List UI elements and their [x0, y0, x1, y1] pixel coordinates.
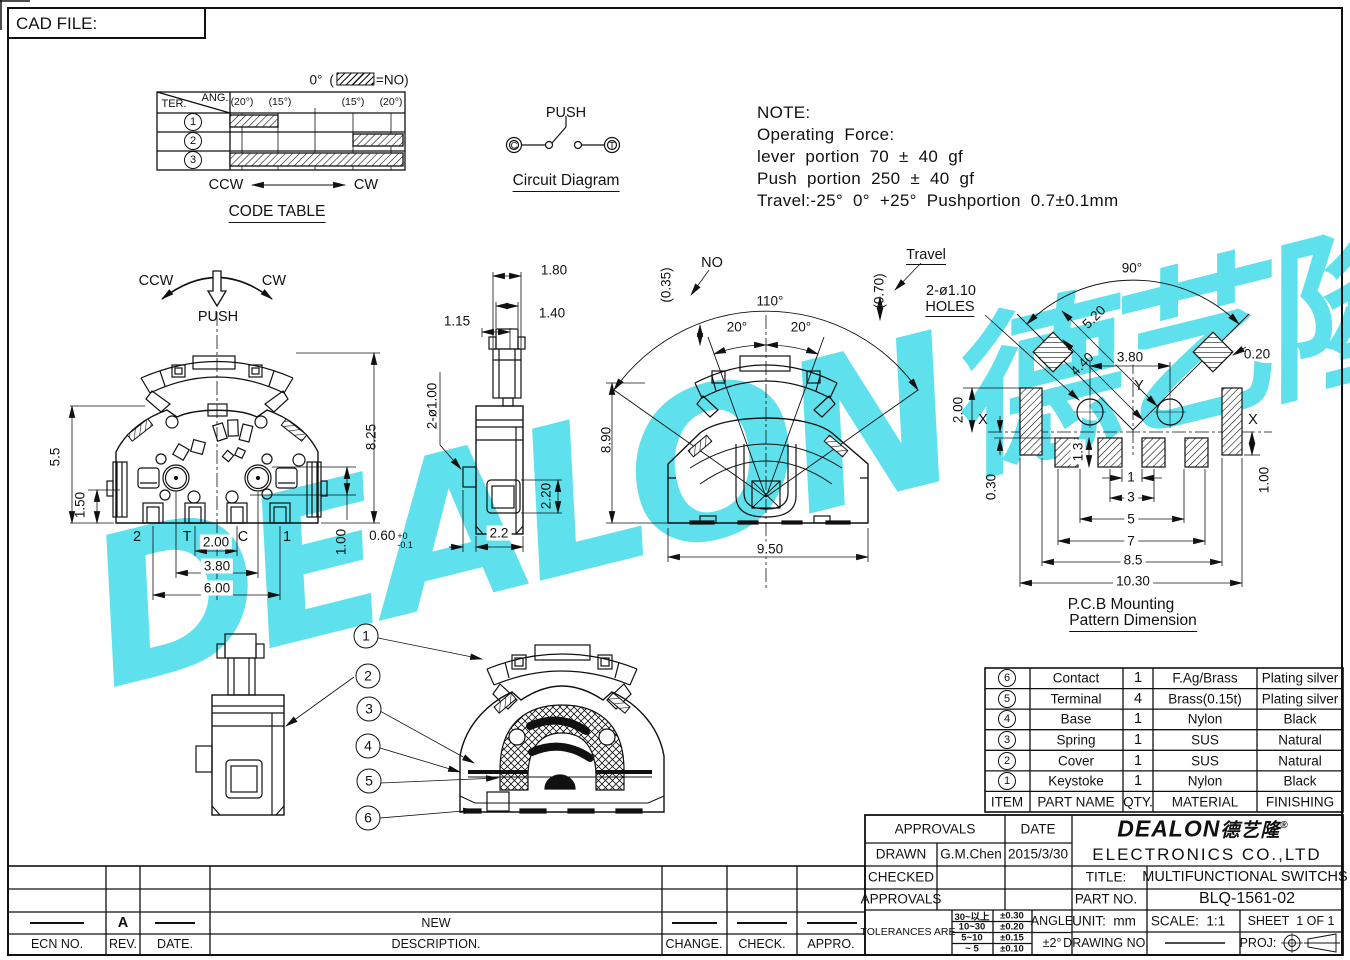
code-ccw-label: CCW	[209, 177, 244, 193]
code-cw-label: CW	[354, 177, 378, 193]
tb-angle-label: ANGLE	[1031, 914, 1073, 928]
tb-title-value: MULTIFUNCTIONAL SWITCHS	[1142, 869, 1347, 885]
tb-partno-label: PART NO.	[1075, 892, 1137, 907]
note-line-3: lever portion 70 ± 40 gf	[757, 147, 963, 167]
tb-unit-cell: UNIT: mm	[1072, 914, 1136, 929]
bom-mat-1: Nylon	[1188, 774, 1223, 789]
code-table-title: CODE TABLE	[229, 203, 326, 223]
tb-checked-label: CHECKED	[868, 870, 934, 885]
callout-2: 2	[356, 664, 381, 689]
dim-pcb-1-3: 1.3	[1071, 440, 1086, 465]
dim-side-2-2: 2.2	[487, 526, 512, 541]
code-zero-label: 0°	[310, 73, 323, 88]
bom-qty-5: 4	[1134, 691, 1142, 707]
bom-fin-2: Natural	[1278, 754, 1322, 769]
tb-tol-val-4: ±0.10	[1000, 944, 1024, 955]
bom-mat-3: SUS	[1191, 733, 1219, 748]
code-table-ter: TER.	[161, 98, 186, 110]
bom-item-4: 4	[998, 710, 1016, 728]
dim-pcb-7: 7	[1124, 534, 1138, 549]
bom-fin-4: Black	[1283, 712, 1316, 727]
tb-angle-value: ±2°	[1043, 936, 1062, 950]
callout-4: 4	[356, 734, 381, 759]
bom-part-6: Contact	[1053, 671, 1100, 686]
callout-5: 5	[357, 769, 382, 794]
dim-front-2-00: 2.00	[200, 535, 232, 550]
tb-date-header: DATE	[1020, 822, 1055, 837]
dim-center-20r: 20°	[791, 320, 811, 335]
code-row-2: 2	[184, 132, 202, 150]
dim-front-5-5: 5.5	[48, 448, 63, 467]
bom-item-3: 3	[998, 731, 1016, 749]
dim-pcb-3-80: 3.80	[1114, 350, 1146, 365]
circuit-caption: Circuit Diagram	[513, 172, 620, 192]
note-line-4: Push portion 250 ± 40 gf	[757, 169, 974, 189]
note-line-5: Travel:-25° 0° +25° Pushportion 0.7±0.1m…	[757, 191, 1118, 211]
bom-header-fin: FINISHING	[1266, 795, 1334, 810]
dim-pcb-2-00: 2.00	[951, 397, 966, 423]
dim-side-1-15: 1.15	[444, 314, 470, 329]
tb-proj-label: PROJ:	[1240, 936, 1277, 950]
bom-mat-5: Brass(0.15t)	[1168, 692, 1242, 707]
dim-side-1-80: 1.80	[541, 263, 567, 278]
bom-header-mat: MATERIAL	[1172, 795, 1239, 810]
center-no-label: NO	[701, 255, 723, 271]
hatch-swatch-icon	[336, 73, 374, 86]
circuit-t-terminal: T	[609, 141, 615, 152]
front-terminal-c: C	[238, 529, 248, 545]
tb-partno-value: BLQ-1561-02	[1199, 890, 1295, 908]
cad-file-label: CAD FILE:	[16, 14, 97, 34]
front-cw-label: CW	[262, 273, 286, 289]
bom-part-5: Terminal	[1050, 692, 1101, 707]
tb-tol-range-4: ~ 5	[965, 944, 978, 955]
tb-drawn-by: G.M.Chen	[940, 847, 1002, 862]
pcb-y-axis: Y	[1134, 378, 1144, 394]
code-col-15r: (15°)	[342, 96, 365, 108]
bom-item-2: 2	[998, 752, 1016, 770]
front-ccw-label: CCW	[139, 273, 174, 289]
dim-center-0-70: (0.70)	[872, 273, 887, 308]
bom-header-qty: QTY.	[1123, 795, 1153, 810]
bom-part-3: Spring	[1056, 733, 1095, 748]
tb-tol-val-3: ±0.15	[1000, 933, 1024, 944]
dim-center-0-35: (0.35)	[659, 267, 674, 302]
bom-fin-3: Natural	[1278, 733, 1322, 748]
tb-tol-val-1: ±0.30	[1000, 911, 1024, 922]
callout-1: 1	[354, 624, 379, 649]
bom-qty-1: 1	[1134, 773, 1142, 789]
bom-fin-6: Plating silver	[1262, 671, 1339, 686]
bom-part-1: Keystoke	[1048, 774, 1104, 789]
front-push-label: PUSH	[198, 309, 238, 325]
bom-fin-5: Plating silver	[1262, 692, 1339, 707]
bom-qty-4: 1	[1134, 711, 1142, 727]
company-logo: DEALON德艺隆®	[1117, 816, 1289, 843]
dim-front-1-00: 1.00	[334, 529, 349, 555]
tb-drawingno-label: DRAWING NO.	[1063, 936, 1149, 950]
tb-tol-range-3: 5~10	[961, 933, 982, 944]
bom-header-item: ITEM	[991, 795, 1023, 810]
circuit-push-label: PUSH	[546, 105, 586, 121]
dim-pcb-1: 1	[1124, 470, 1138, 485]
bom-mat-2: SUS	[1191, 754, 1219, 769]
dim-center-110: 110°	[757, 294, 784, 309]
bom-mat-6: F.Ag/Brass	[1172, 671, 1237, 686]
dim-side-2-20: 2.20	[539, 483, 554, 509]
dim-front-3-80: 3.80	[201, 559, 233, 574]
dim-pcb-0-30: 0.30	[984, 474, 999, 500]
watermark-text: DEALON德艺隆®	[64, 161, 1350, 735]
rev-letter-a: A	[118, 915, 128, 931]
tb-drawn-label: DRAWN	[876, 847, 927, 862]
callout-3: 3	[357, 697, 382, 722]
dim-side-0-60: 0.60+0-0.1	[369, 528, 413, 550]
pcb-holes-line1: 2-ø1.10	[926, 283, 976, 299]
front-terminal-t: T	[183, 529, 192, 545]
dim-pcb-0-20: 0.20	[1244, 347, 1270, 362]
dim-pcb-90: 90°	[1122, 261, 1142, 276]
dim-side-1-40: 1.40	[539, 306, 565, 321]
dim-pcb-5: 5	[1124, 512, 1138, 527]
tb-drawn-date: 2015/3/30	[1008, 847, 1068, 862]
code-row-3: 3	[184, 151, 202, 169]
rev-header-date: DATE.	[157, 937, 193, 951]
rev-header-desc: DESCRIPTION.	[392, 937, 481, 951]
note-line-1: NOTE:	[757, 103, 810, 123]
rev-desc-new: NEW	[421, 916, 450, 930]
pcb-x-right: X	[1248, 412, 1258, 428]
dim-center-20l: 20°	[727, 320, 747, 335]
tb-tol-val-2: ±0.20	[1000, 922, 1024, 933]
bom-fin-1: Black	[1283, 774, 1316, 789]
bom-part-4: Base	[1061, 712, 1092, 727]
pcb-holes-line2: HOLES	[925, 299, 974, 317]
center-travel-label: Travel	[906, 247, 946, 265]
tb-scale-cell: SCALE: 1:1	[1151, 914, 1225, 929]
dim-center-9-50: 9.50	[754, 542, 786, 557]
dim-front-1-50: 1.50	[73, 492, 88, 518]
bom-item-6: 6	[998, 669, 1016, 687]
bom-item-5: 5	[998, 690, 1016, 708]
dim-pcb-10-30: 10.30	[1113, 574, 1153, 589]
company-name: ELECTRONICS CO.,LTD	[1092, 845, 1321, 865]
dim-front-6-00: 6.00	[201, 581, 233, 596]
dim-side-holes: 2-ø1.00	[425, 383, 440, 430]
cad-drawing-page: { "page":{"cad_file":"CAD FILE:"}, "colo…	[0, 0, 1350, 960]
pcb-caption-2: Pattern Dimension	[1069, 612, 1197, 632]
rev-header-rev: REV.	[109, 937, 137, 951]
bom-qty-2: 1	[1134, 753, 1142, 769]
note-line-2: Operating Force:	[757, 125, 894, 145]
code-row-1: 1	[184, 113, 202, 131]
front-terminal-1: 1	[283, 529, 291, 545]
code-table-ang: ANG.	[202, 92, 229, 104]
dim-pcb-3: 3	[1124, 490, 1138, 505]
tb-sheet-cell: SHEET 1 OF 1	[1248, 914, 1335, 928]
rev-header-change: CHANGE.	[666, 937, 723, 951]
front-terminal-2: 2	[133, 529, 141, 545]
code-col-20l: (20°)	[231, 96, 254, 108]
tb-title-label: TITLE:	[1086, 870, 1127, 885]
dim-pcb-1-00: 1.00	[1257, 467, 1272, 493]
bom-mat-4: Nylon	[1188, 712, 1223, 727]
bom-item-1: 1	[998, 772, 1016, 790]
tb-tol-range-2: 10~30	[959, 922, 986, 933]
tb-approvals-label: APPROVALS	[861, 892, 942, 907]
bom-qty-3: 1	[1134, 732, 1142, 748]
dim-front-8-25: 8.25	[364, 424, 379, 450]
rev-header-appro: APPRO.	[807, 937, 854, 951]
pcb-x-left: X	[978, 412, 988, 428]
circuit-c-terminal: C	[511, 141, 518, 152]
code-legend: (=NO)	[329, 73, 408, 88]
rev-header-ecn: ECN NO.	[31, 937, 83, 951]
bom-qty-6: 1	[1134, 670, 1142, 686]
rev-header-check: CHECK.	[738, 937, 785, 951]
code-col-20r: (20°)	[380, 96, 403, 108]
tb-tolerances-label: TOLERANCES ARE	[861, 926, 956, 938]
code-col-15l: (15°)	[269, 96, 292, 108]
tb-approvals-header: APPROVALS	[895, 822, 976, 837]
bom-part-2: Cover	[1058, 754, 1094, 769]
dim-pcb-8-5: 8.5	[1121, 553, 1146, 568]
bom-header-part: PART NAME	[1037, 795, 1114, 810]
callout-6: 6	[356, 806, 381, 831]
dim-center-8-90: 8.90	[599, 427, 614, 453]
